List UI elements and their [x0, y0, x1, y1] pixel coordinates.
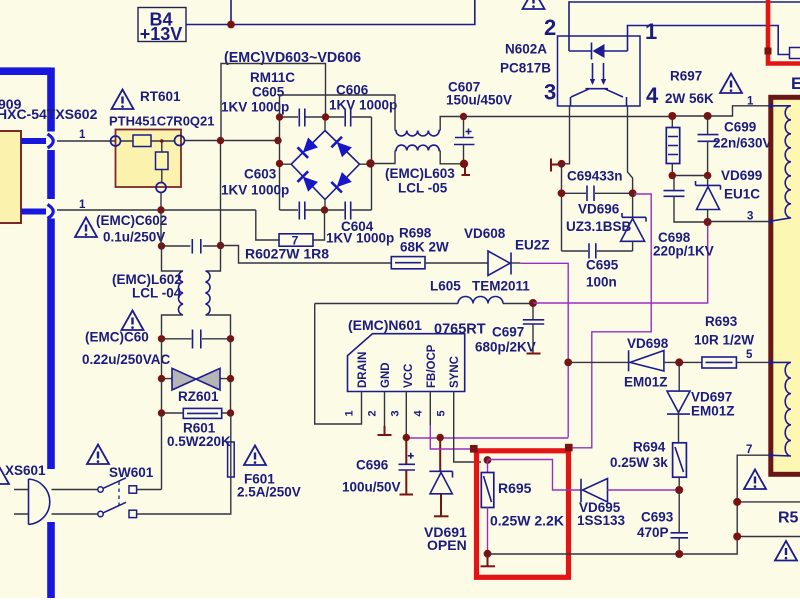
- svg-text:L605 TEM2011: L605 TEM2011: [430, 279, 530, 294]
- svg-text:SW601: SW601: [109, 465, 154, 480]
- svg-text:GND: GND: [380, 362, 392, 388]
- svg-text:E: E: [791, 74, 800, 93]
- svg-text:C695: C695: [586, 258, 619, 273]
- svg-text:EU2Z: EU2Z: [515, 238, 550, 253]
- svg-text:1: 1: [79, 129, 86, 141]
- svg-text:FB/OCP: FB/OCP: [426, 344, 438, 388]
- svg-text:(EMC)C60: (EMC)C60: [85, 330, 149, 345]
- svg-text:RT601: RT601: [140, 89, 181, 104]
- svg-text:4: 4: [413, 410, 425, 417]
- svg-text:1KV 1000p: 1KV 1000p: [329, 98, 397, 113]
- svg-text:EU1C: EU1C: [724, 187, 760, 202]
- svg-text:680p/2KV: 680p/2KV: [475, 340, 536, 355]
- svg-text:VD608: VD608: [464, 226, 506, 241]
- svg-text:R693: R693: [705, 314, 738, 329]
- svg-text:10R 1/2W: 10R 1/2W: [694, 333, 754, 348]
- svg-text:LCL -05: LCL -05: [398, 181, 448, 196]
- svg-text:LCL -04: LCL -04: [132, 286, 182, 301]
- svg-text:470P: 470P: [637, 525, 669, 540]
- svg-text:C699: C699: [724, 120, 756, 135]
- svg-text:VD697: VD697: [691, 390, 732, 405]
- svg-text:1KV 1000p: 1KV 1000p: [221, 183, 289, 198]
- svg-text:R697: R697: [670, 69, 702, 84]
- svg-text:0.25W 2.2K: 0.25W 2.2K: [490, 513, 564, 529]
- svg-text:0.1u/250V: 0.1u/250V: [103, 230, 165, 245]
- svg-text:100n: 100n: [586, 275, 617, 290]
- svg-text:2W 56K: 2W 56K: [665, 91, 714, 106]
- svg-text:(EMC)N601: (EMC)N601: [348, 317, 422, 333]
- svg-text:3: 3: [747, 211, 753, 223]
- svg-text:220p/1KV: 220p/1KV: [653, 244, 714, 259]
- svg-text:VCC: VCC: [403, 364, 415, 388]
- svg-text:150u/450V: 150u/450V: [446, 93, 512, 108]
- svg-text:1: 1: [79, 199, 86, 211]
- svg-text:VD699: VD699: [721, 168, 762, 183]
- svg-text:PC817B: PC817B: [500, 61, 551, 76]
- svg-text:XS601: XS601: [5, 463, 46, 478]
- svg-text:2: 2: [544, 15, 556, 40]
- svg-text:PTH451C7R0Q21: PTH451C7R0Q21: [109, 114, 215, 129]
- svg-text:5: 5: [436, 410, 448, 416]
- svg-text:R694: R694: [633, 440, 666, 455]
- svg-text:EM01Z: EM01Z: [624, 375, 668, 390]
- svg-text:SYNC: SYNC: [449, 356, 461, 388]
- svg-text:1SS133: 1SS133: [577, 513, 626, 528]
- svg-text:VD696: VD696: [578, 202, 620, 217]
- svg-text:0.25W 3k: 0.25W 3k: [610, 455, 668, 470]
- svg-text:0.22u/250VAC: 0.22u/250VAC: [82, 352, 171, 367]
- svg-text:3: 3: [390, 410, 402, 416]
- svg-text:0765RT: 0765RT: [434, 322, 486, 338]
- svg-text:R6027W 1R8: R6027W 1R8: [245, 246, 329, 262]
- svg-text:+13V: +13V: [140, 24, 183, 44]
- svg-text:1: 1: [747, 96, 754, 108]
- svg-text:22n/630V: 22n/630V: [713, 136, 772, 151]
- svg-text:(EMC)C602: (EMC)C602: [96, 213, 167, 228]
- svg-text:0.5W220K: 0.5W220K: [167, 434, 231, 449]
- svg-text:DRAIN: DRAIN: [357, 352, 369, 388]
- svg-text:68K 2W: 68K 2W: [400, 240, 449, 255]
- svg-text:1: 1: [645, 19, 657, 44]
- svg-text:VD698: VD698: [627, 336, 669, 351]
- svg-text:C696: C696: [356, 458, 389, 473]
- svg-text:RM11C: RM11C: [250, 70, 295, 85]
- svg-text:2.5A/250V: 2.5A/250V: [237, 485, 301, 500]
- svg-text:R5: R5: [778, 510, 799, 527]
- svg-text:RZ601: RZ601: [178, 389, 219, 404]
- svg-text:C697: C697: [492, 325, 524, 340]
- svg-text:UZ3.1BSB: UZ3.1BSB: [566, 219, 632, 234]
- svg-text:N602A: N602A: [505, 42, 547, 57]
- svg-text:(EMC)L603: (EMC)L603: [385, 166, 455, 181]
- svg-text:HXC-54TXS602: HXC-54TXS602: [0, 106, 98, 122]
- svg-text:1KV 1000p: 1KV 1000p: [326, 231, 394, 246]
- svg-text:7: 7: [746, 444, 752, 456]
- svg-text:2: 2: [367, 410, 379, 416]
- svg-text:3: 3: [544, 80, 556, 105]
- svg-text:C693: C693: [641, 510, 674, 525]
- svg-text:EM01Z: EM01Z: [691, 404, 735, 419]
- svg-text:5: 5: [746, 349, 753, 361]
- svg-text:C69433n: C69433n: [567, 169, 623, 184]
- svg-text:R698: R698: [399, 226, 432, 241]
- svg-text:R695: R695: [498, 480, 532, 496]
- svg-text:C603: C603: [244, 167, 277, 182]
- svg-text:OPEN: OPEN: [427, 537, 467, 553]
- svg-text:1: 1: [344, 410, 356, 416]
- svg-text:100u/50V: 100u/50V: [342, 480, 401, 495]
- svg-text:4: 4: [646, 83, 659, 108]
